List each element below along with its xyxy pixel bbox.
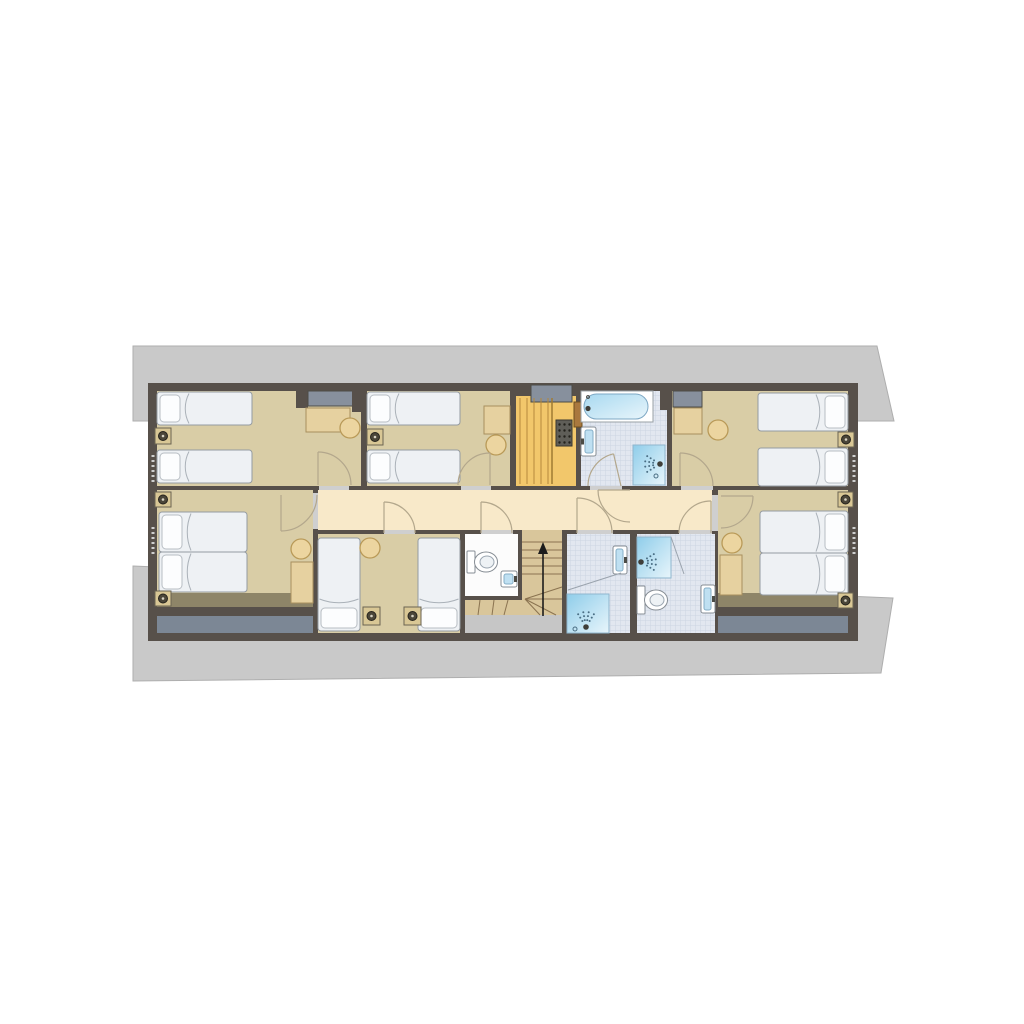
stool [722,533,742,553]
eaves-slate-right [718,616,848,633]
floor-plan-image [0,0,1024,1024]
bed-single [367,392,460,425]
desk-bedroom-4 [291,562,313,603]
bed-single [758,393,848,431]
stool [340,418,360,438]
bed-single [367,450,460,483]
threshold-bedroom-6 [712,495,718,531]
sink-bathroom-top [581,427,596,456]
bed-double-half [760,553,848,595]
threshold-bedroom-2 [461,486,491,490]
bed-single [418,538,460,631]
shower-bathroom-left [567,594,609,633]
corridor-floor [318,490,712,530]
eaves-slate-left [157,616,313,633]
nightstand [155,428,171,444]
bed-single [318,538,360,631]
stool [708,420,728,440]
nightstand [155,591,171,606]
wall-stub-a [296,383,308,408]
desk-bedroom-6 [720,555,742,595]
sink-wc [501,571,517,587]
stool [486,435,506,455]
nightstand [404,607,421,625]
nightstand [838,492,853,507]
wall-stub-c [660,383,672,410]
threshold-stairs [522,530,562,534]
threshold-bedroom-5 [384,530,415,534]
threshold-bathroom-right [679,530,712,534]
bed-single [157,392,252,425]
under-stair-void [465,615,562,633]
nightstand [363,607,380,625]
stool [291,539,311,559]
nightstand [155,492,171,507]
bed-single [758,448,848,486]
stool [360,538,380,558]
shower-bathroom-right [637,537,671,578]
sink-bathroom-left [613,546,627,574]
eaves-olive-left [157,593,313,607]
bed-double-half [159,512,247,552]
duct-bedroom-1 [308,391,356,406]
nightstand [838,432,854,447]
bed-double-half [159,552,247,592]
threshold-bedroom-3 [681,486,713,490]
floor-plan-canvas [0,0,1024,1024]
threshold-bathroom-left [577,530,613,534]
desk-bedroom-2 [484,406,510,434]
shower-bathroom-top [633,445,665,485]
bed-single [157,450,252,483]
threshold-wc [481,530,513,534]
wall-stub-b [352,383,366,412]
toilet-wc [467,551,498,573]
sink-bathroom-right [701,585,715,613]
bed-double-half [760,511,848,553]
nightstand [367,429,383,445]
nightstand [838,593,853,608]
threshold-bedroom-1 [319,486,349,490]
bathtub [581,391,653,422]
duct-bedroom-3 [673,391,702,407]
desk-bedroom-3 [674,408,702,434]
